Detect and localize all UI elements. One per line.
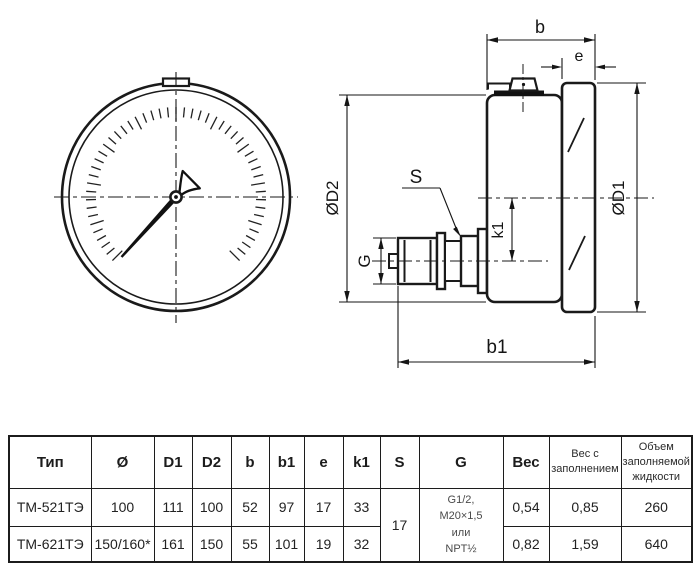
front-view (54, 72, 298, 323)
spec-table-wrap: Тип Ø D1 D2 b b1 e k1 S G Вес Вес с запо… (8, 435, 693, 563)
cell-b1: 101 (269, 526, 304, 562)
header-volume: Объем заполняемой жидкости (621, 436, 692, 488)
dial-tick (245, 151, 254, 156)
dial-tick (238, 144, 249, 152)
dial-tick (121, 126, 127, 134)
dial-tick (230, 251, 240, 261)
cell-k1: 32 (343, 526, 380, 562)
dim-e: e (541, 48, 616, 79)
header-g: G (419, 436, 503, 488)
header-type: Тип (9, 436, 91, 488)
cell-b: 55 (231, 526, 269, 562)
dial-tick (97, 236, 106, 241)
dim-k1-label: k1 (490, 221, 507, 238)
dial-tick (91, 167, 100, 170)
dial-tick (95, 159, 104, 163)
dial-tick (256, 191, 266, 192)
dim-e-label: e (575, 48, 584, 65)
header-e: e (304, 436, 343, 488)
page: { "drawing": { "labels": { "b": "b", "e"… (0, 0, 700, 571)
dimensions: b e ØD2 ØD1 (323, 17, 646, 368)
leader-s: S (402, 167, 461, 237)
dial-tick (251, 183, 265, 185)
cell-e: 17 (304, 488, 343, 526)
dial-tick (242, 242, 250, 248)
cell-diameter: 100 (91, 488, 154, 526)
dial-tick (231, 131, 238, 138)
dial-tick (191, 109, 193, 119)
cell-b: 52 (231, 488, 269, 526)
dial-tick (87, 207, 97, 208)
dial-tick (102, 242, 110, 248)
cell-s-merged: 17 (380, 488, 419, 562)
header-diameter: Ø (91, 436, 154, 488)
spec-table: Тип Ø D1 D2 b b1 e k1 S G Вес Вес с запо… (8, 435, 693, 563)
cell-b1: 97 (269, 488, 304, 526)
cell-weight: 0,82 (503, 526, 549, 562)
header-s: S (380, 436, 419, 488)
dial-tick (219, 121, 224, 130)
dial-tick (143, 113, 147, 122)
dial-tick (112, 251, 122, 261)
cell-type: ТМ-521ТЭ (9, 488, 91, 526)
cell-d2: 100 (192, 488, 231, 526)
table-row: ТМ-521ТЭ 100 111 100 52 97 17 33 17 G1/2… (9, 488, 692, 526)
dial-tick (255, 207, 265, 208)
dial-tick (246, 236, 255, 241)
needle-pointer (121, 198, 176, 258)
cell-weight: 0,54 (503, 488, 549, 526)
table-row: ТМ-621ТЭ 150/160* 161 150 55 101 19 32 0… (9, 526, 692, 562)
dim-g-label: G (355, 254, 374, 267)
valve-lever (488, 84, 510, 90)
cell-weight-filled: 1,59 (549, 526, 621, 562)
g-line: G1/2, (420, 492, 503, 509)
dial-tick (251, 167, 260, 170)
cell-volume: 260 (621, 488, 692, 526)
dial-tick (248, 221, 261, 225)
dial-tick (103, 144, 114, 152)
dial-tick (254, 175, 264, 178)
header-weight-filled: Вес с заполнением (549, 436, 621, 488)
needle-counterweight (180, 171, 200, 195)
dial-tick (225, 126, 231, 134)
dial-tick (86, 191, 96, 192)
cell-weight-filled: 0,85 (549, 488, 621, 526)
gauge-drawing-svg: b e ØD2 ØD1 (0, 0, 700, 430)
needle-hub-dot (174, 195, 178, 199)
cell-d2: 150 (192, 526, 231, 562)
dial-tick (205, 113, 209, 122)
dial-tick (236, 138, 244, 145)
header-b1: b1 (269, 436, 304, 488)
table-header-row: Тип Ø D1 D2 b b1 e k1 S G Вес Вес с запо… (9, 436, 692, 488)
cell-diameter: 150/160* (91, 526, 154, 562)
header-k1: k1 (343, 436, 380, 488)
header-b: b (231, 436, 269, 488)
dim-b1-label: b1 (486, 337, 507, 358)
dial-tick (128, 121, 133, 130)
dial-tick (114, 131, 121, 138)
dial-tick (90, 221, 103, 225)
cell-type: ТМ-621ТЭ (9, 526, 91, 562)
dim-b-label: b (535, 17, 545, 37)
dial-tick (135, 117, 141, 130)
cell-d1: 161 (154, 526, 192, 562)
dim-d1-label: ØD1 (609, 181, 628, 216)
g-line: NPT½ (420, 541, 503, 558)
header-d2: D2 (192, 436, 231, 488)
technical-drawing: b e ØD2 ØD1 (0, 0, 700, 430)
cell-e: 19 (304, 526, 343, 562)
dial-tick (151, 111, 154, 121)
dial-tick (168, 107, 169, 117)
dim-d2-label: ØD2 (323, 181, 342, 216)
dim-s-label: S (410, 167, 423, 188)
dial-tick (93, 229, 102, 233)
cell-g-merged: G1/2, М20×1,5 или NPT½ (419, 488, 503, 562)
dial-tick (87, 183, 101, 185)
dial-tick (107, 248, 115, 254)
dial-tick (88, 215, 98, 217)
cell-volume: 640 (621, 526, 692, 562)
header-d1: D1 (154, 436, 192, 488)
fill-valve (488, 79, 544, 97)
dial-tick (248, 159, 257, 163)
g-line: М20×1,5 (420, 508, 503, 525)
dial-tick (109, 138, 117, 145)
dial-tick (89, 175, 99, 178)
dial-tick (211, 117, 217, 130)
dial-tick (249, 229, 258, 233)
dial-tick (198, 111, 201, 121)
cell-d1: 111 (154, 488, 192, 526)
cell-k1: 33 (343, 488, 380, 526)
dial-tick (159, 109, 161, 119)
header-weight: Вес (503, 436, 549, 488)
dial-tick (254, 215, 264, 217)
dial-tick (99, 151, 108, 156)
g-line: или (420, 525, 503, 542)
dial-tick (238, 248, 246, 254)
dial-tick (184, 107, 185, 117)
